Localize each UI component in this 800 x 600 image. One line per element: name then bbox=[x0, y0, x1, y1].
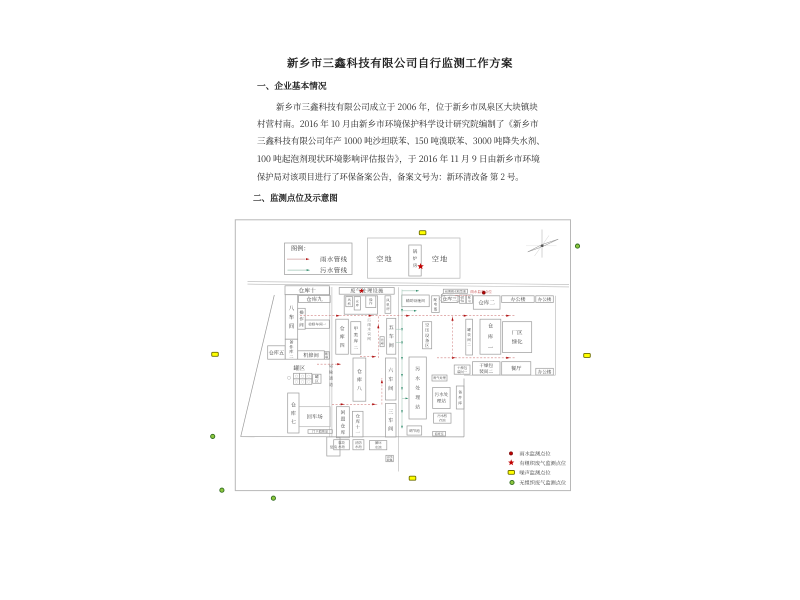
svg-text:仓库五: 仓库五 bbox=[269, 349, 285, 356]
svg-text:三车间: 三车间 bbox=[388, 409, 394, 433]
svg-text:机修间: 机修间 bbox=[303, 352, 319, 359]
svg-text:装间一: 装间一 bbox=[457, 369, 468, 374]
svg-text:调节池: 调节池 bbox=[409, 428, 420, 434]
svg-text:值班室: 值班室 bbox=[435, 432, 444, 436]
svg-text:存池: 存池 bbox=[439, 417, 446, 422]
svg-text:办公楼: 办公楼 bbox=[510, 296, 525, 303]
svg-text:楼梯: 楼梯 bbox=[461, 296, 464, 303]
svg-text:污雨水管网: 污雨水管网 bbox=[367, 319, 371, 342]
svg-text:仓库十: 仓库十 bbox=[298, 285, 316, 294]
svg-text:仓库三: 仓库三 bbox=[442, 296, 457, 303]
svg-text:污水处: 污水处 bbox=[435, 392, 449, 398]
svg-text:收集: 收集 bbox=[387, 458, 393, 462]
svg-text:风机房: 风机房 bbox=[386, 297, 390, 311]
svg-text:空压设备区: 空压设备区 bbox=[425, 322, 430, 349]
svg-text:○: ○ bbox=[295, 374, 298, 379]
svg-text:雨水监测点位: 雨水监测点位 bbox=[519, 450, 551, 457]
svg-text:配电: 配电 bbox=[468, 296, 471, 303]
svg-text:○: ○ bbox=[301, 379, 304, 384]
svg-text:理站: 理站 bbox=[437, 398, 447, 404]
svg-text:仓库八: 仓库八 bbox=[357, 368, 362, 392]
svg-text:噪声监测点位: 噪声监测点位 bbox=[519, 469, 551, 476]
svg-text:空地: 空地 bbox=[432, 255, 448, 265]
svg-text:有组织废气监测点位: 有组织废气监测点位 bbox=[519, 460, 567, 467]
svg-text:仓库七: 仓库七 bbox=[291, 401, 297, 425]
svg-text:仓库二: 仓库二 bbox=[478, 299, 495, 307]
svg-text:甲类库二: 甲类库二 bbox=[354, 326, 359, 351]
svg-text:雨水管线: 雨水管线 bbox=[320, 254, 348, 263]
svg-text:○: ○ bbox=[301, 374, 304, 379]
svg-text:办公楼: 办公楼 bbox=[538, 369, 552, 375]
svg-text:废气处理: 废气处理 bbox=[433, 375, 447, 380]
svg-text:备件库: 备件库 bbox=[458, 389, 462, 406]
svg-text:门卫值班室: 门卫值班室 bbox=[312, 429, 329, 434]
svg-text:绿化: 绿化 bbox=[512, 338, 523, 346]
svg-text:罐区: 罐区 bbox=[293, 363, 305, 372]
svg-text:仓库十一: 仓库十一 bbox=[355, 413, 360, 436]
svg-text:罐区: 罐区 bbox=[315, 374, 319, 385]
svg-text:五车间: 五车间 bbox=[389, 324, 394, 349]
svg-text:锅炉房: 锅炉房 bbox=[413, 249, 418, 269]
svg-text:八车间: 八车间 bbox=[289, 304, 295, 330]
svg-text:初期雨水收集池: 初期雨水收集池 bbox=[445, 289, 466, 293]
svg-text:废气处理设施: 废气处理设施 bbox=[350, 288, 384, 295]
svg-text:操作: 操作 bbox=[369, 297, 373, 306]
svg-text:无组织废气监测点位: 无组织废气监测点位 bbox=[519, 480, 567, 487]
svg-text:仓库: 仓库 bbox=[356, 299, 360, 308]
svg-text:操作间: 操作间 bbox=[299, 310, 304, 329]
svg-text:餐厅: 餐厅 bbox=[511, 365, 521, 372]
svg-text:水池: 水池 bbox=[375, 444, 382, 449]
svg-text:污水管线: 污水管线 bbox=[320, 265, 348, 274]
svg-text:罐装间二: 罐装间二 bbox=[467, 327, 471, 347]
svg-text:办公楼: 办公楼 bbox=[538, 297, 552, 303]
svg-text:配电室: 配电室 bbox=[434, 298, 438, 312]
svg-text:备件库二: 备件库二 bbox=[289, 340, 294, 360]
svg-text:闲置仓库: 闲置仓库 bbox=[340, 409, 345, 436]
svg-text:配电: 配电 bbox=[325, 351, 329, 360]
svg-text:雨水监测点位: 雨水监测点位 bbox=[470, 289, 492, 295]
svg-text:○: ○ bbox=[295, 379, 298, 384]
svg-text:水池: 水池 bbox=[355, 444, 362, 449]
svg-text:辅助设施间: 辅助设施间 bbox=[406, 298, 425, 304]
svg-text:○: ○ bbox=[307, 379, 310, 384]
svg-text:装间二: 装间二 bbox=[479, 369, 493, 375]
svg-text:仓库四: 仓库四 bbox=[340, 325, 345, 349]
svg-text:水池: 水池 bbox=[338, 444, 345, 449]
svg-text:图例：: 图例： bbox=[291, 244, 310, 253]
svg-text:空地: 空地 bbox=[376, 255, 392, 265]
svg-text:回车场: 回车场 bbox=[307, 413, 324, 421]
svg-text:风机: 风机 bbox=[347, 297, 351, 306]
svg-text:检修车间一: 检修车间一 bbox=[308, 321, 326, 327]
svg-text:污水处理站: 污水处理站 bbox=[415, 366, 420, 411]
svg-text:仓库九: 仓库九 bbox=[306, 295, 323, 303]
svg-text:仓库一: 仓库一 bbox=[488, 322, 494, 352]
svg-text:六车间: 六车间 bbox=[388, 367, 393, 392]
svg-text:厂区: 厂区 bbox=[512, 329, 523, 337]
svg-text:○: ○ bbox=[307, 374, 310, 379]
